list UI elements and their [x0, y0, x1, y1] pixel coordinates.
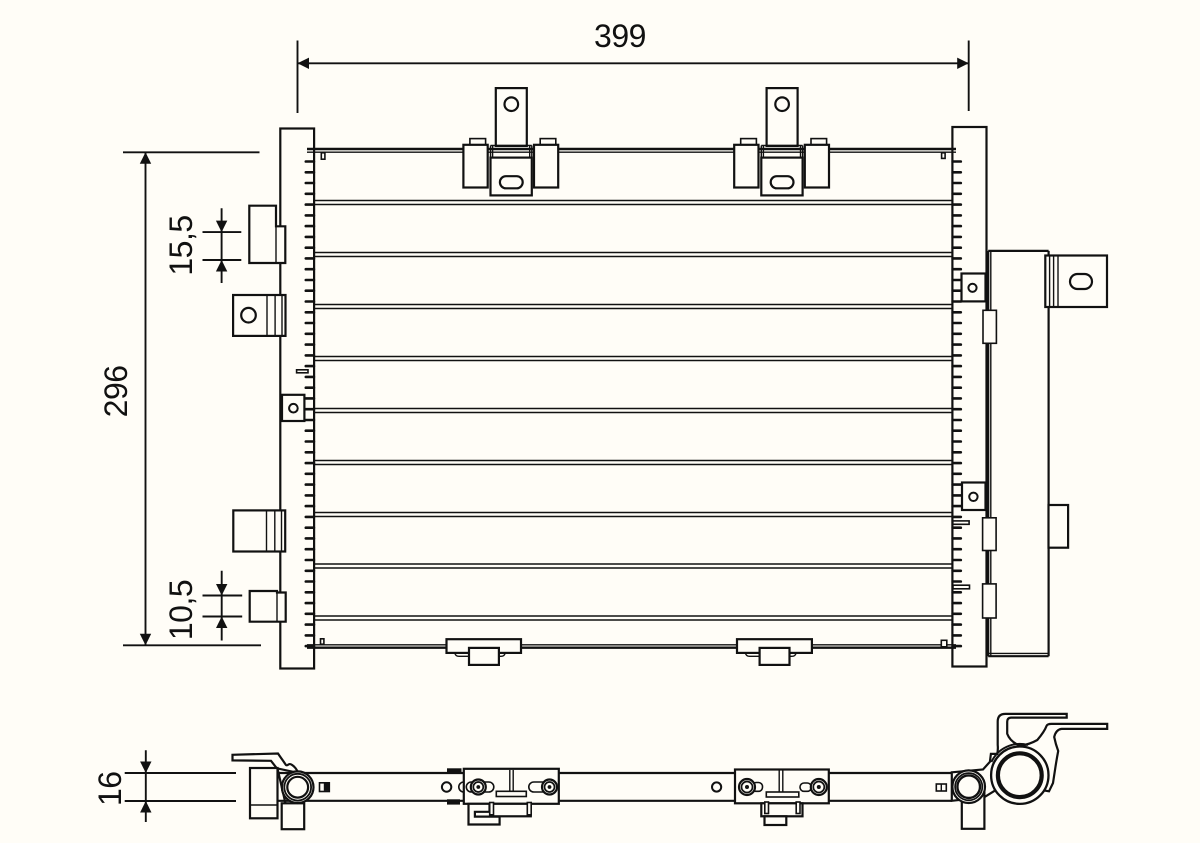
svg-text:15,5: 15,5 [163, 215, 199, 275]
svg-text:10,5: 10,5 [163, 580, 199, 640]
svg-text:296: 296 [98, 365, 134, 417]
svg-text:399: 399 [594, 18, 646, 54]
svg-text:16: 16 [92, 771, 128, 806]
